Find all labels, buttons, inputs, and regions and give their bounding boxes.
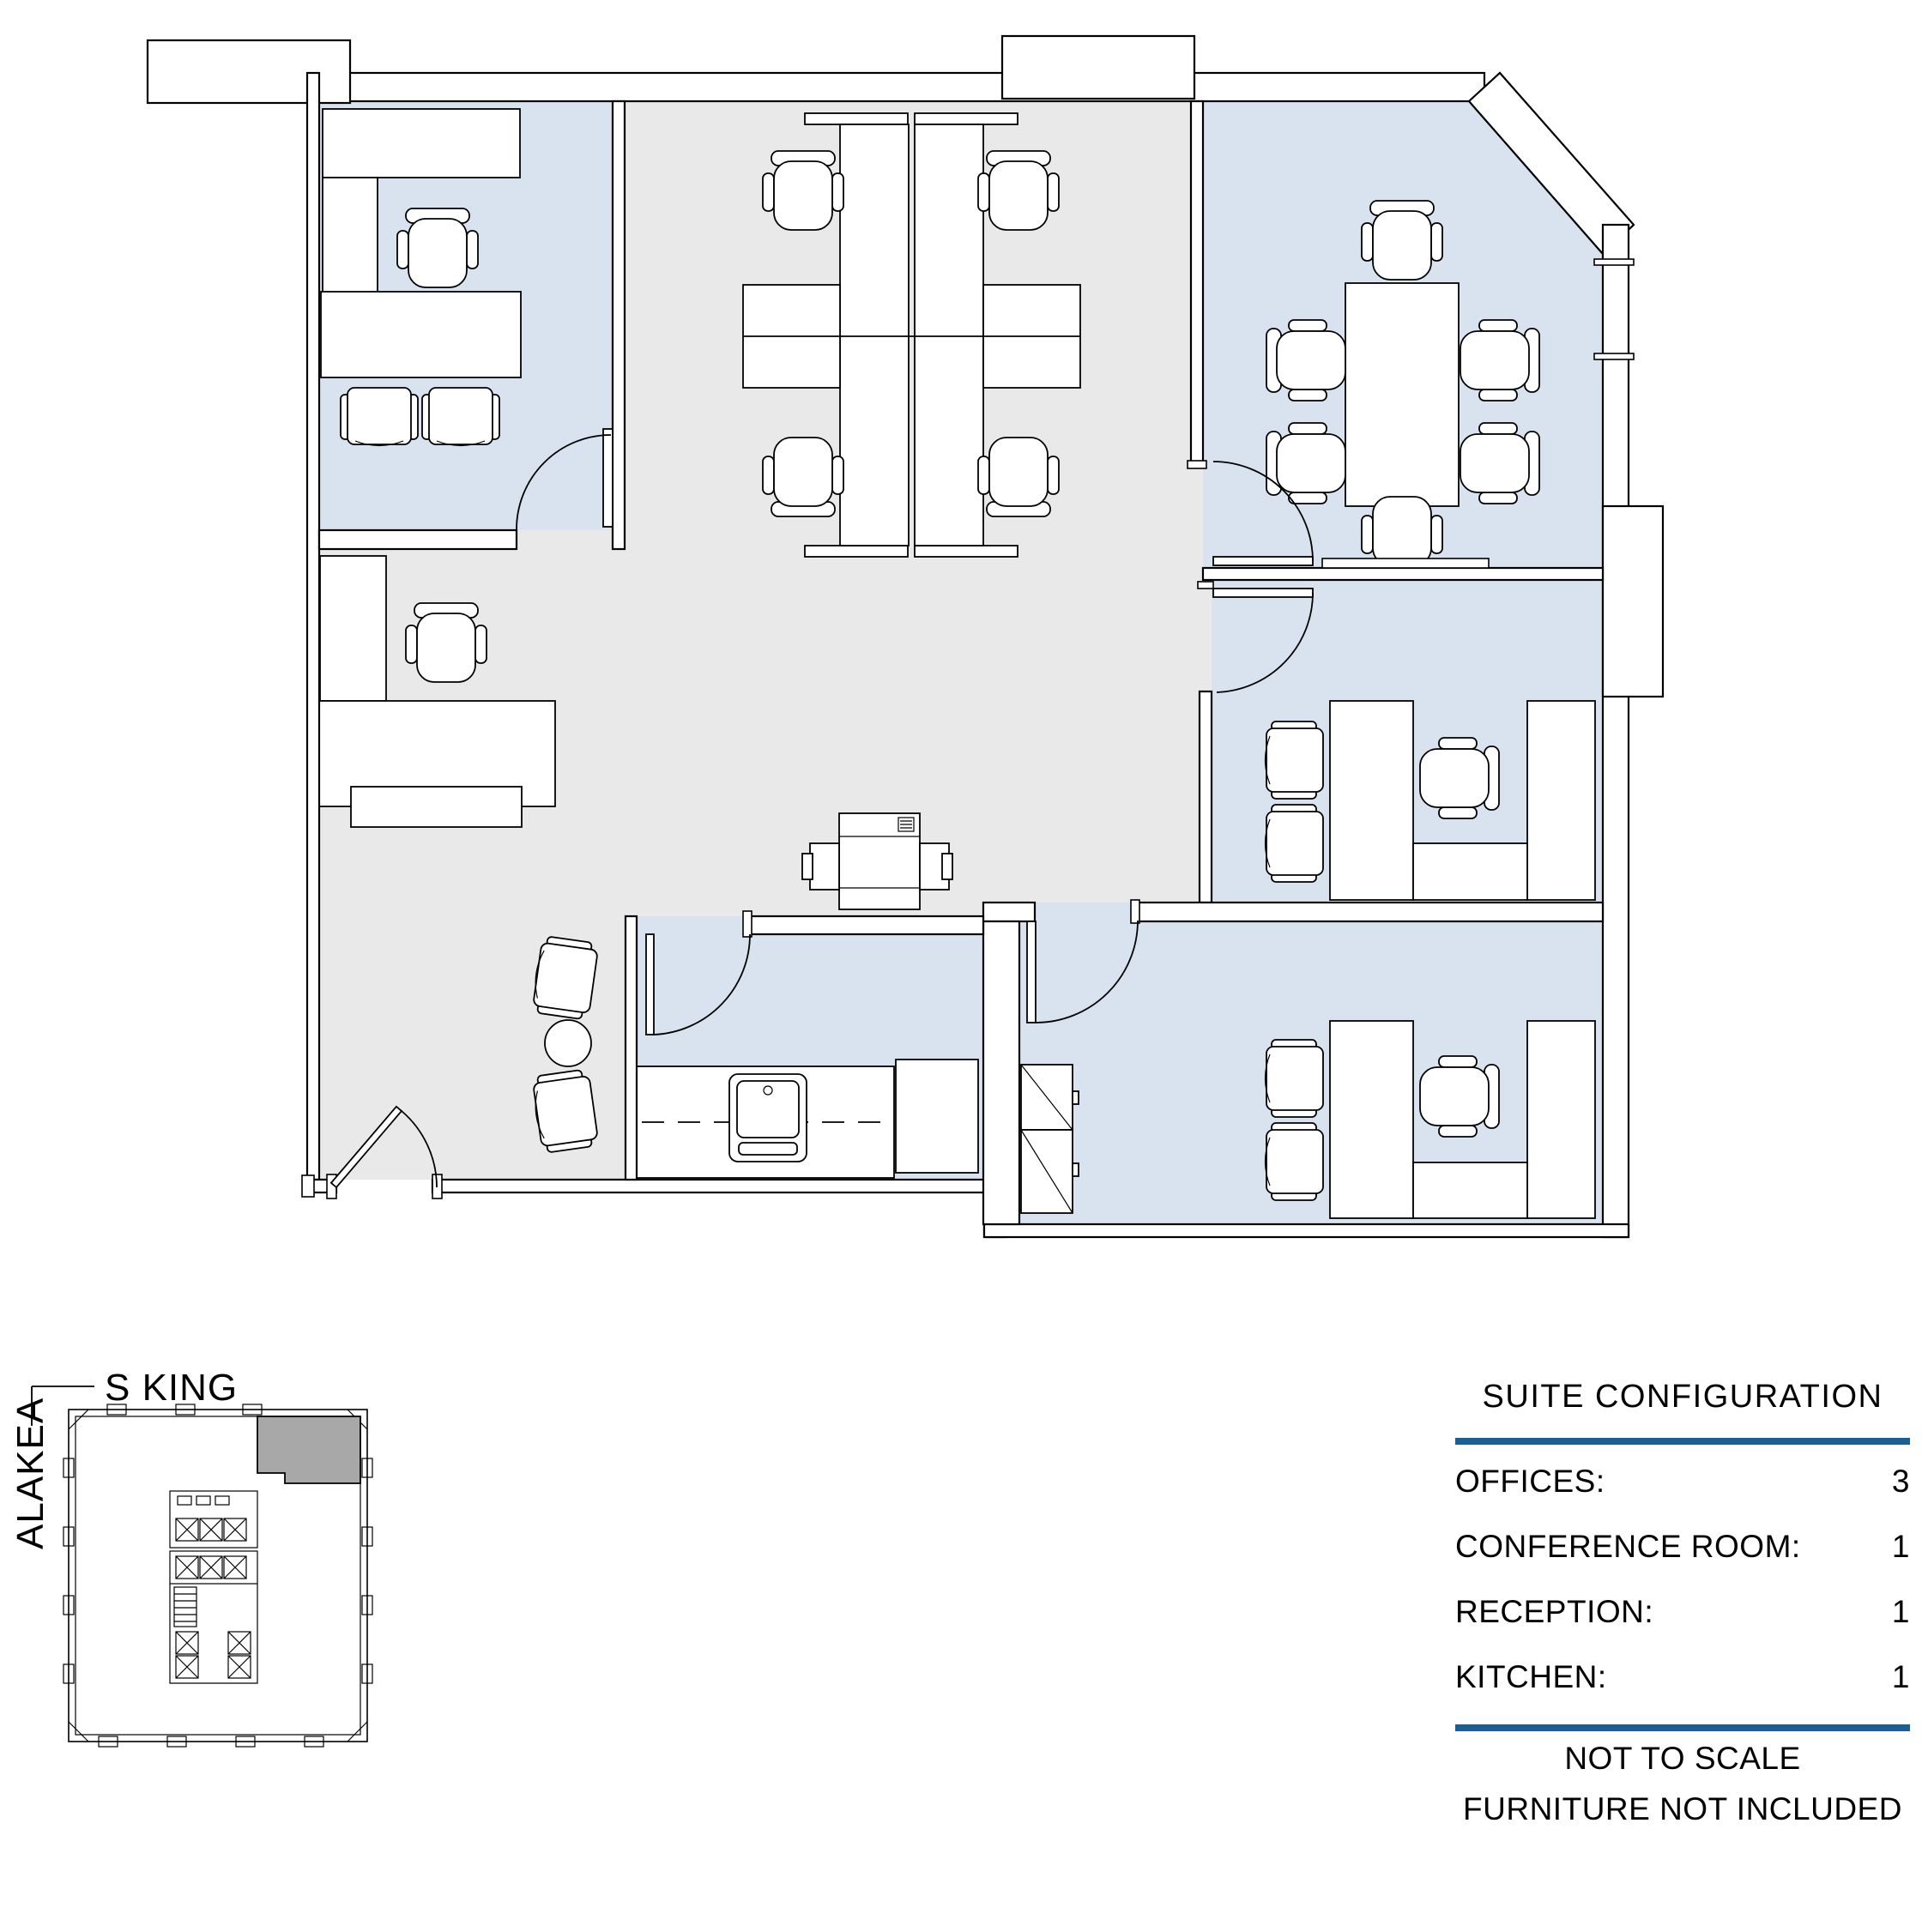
street-label-top: S KING — [105, 1367, 238, 1409]
key-plan: S KING ALAKEA — [9, 1367, 372, 1747]
door-jamb — [1131, 900, 1139, 923]
sidelight-glass — [1322, 558, 1489, 568]
door-jamb — [743, 911, 752, 937]
suite-configuration-panel: SUITE CONFIGURATION OFFICES: 3 CONFERENC… — [1455, 1379, 1910, 1826]
conference-chair-icon — [1460, 320, 1539, 401]
lounge-chair-icon — [531, 935, 599, 1020]
corner-cap — [302, 1175, 314, 1197]
floor-plan-svg: S KING ALAKEA SUITE CONFIGURATION OFFICE… — [0, 0, 1922, 1932]
top-center-column — [1002, 36, 1194, 99]
street-label-left: ALAKEA — [9, 1398, 51, 1549]
kitchen-top-wall — [750, 916, 983, 934]
window-mullion — [1594, 353, 1634, 359]
desk — [1330, 701, 1413, 900]
row-value: 3 — [1892, 1464, 1910, 1499]
office-3-top-wall — [983, 903, 1035, 921]
divider-rule-bottom — [1455, 1724, 1910, 1731]
row-value: 1 — [1892, 1594, 1910, 1629]
office-1-right-wall — [613, 101, 625, 549]
panel-cap — [915, 546, 1018, 557]
divider-rule-top — [1455, 1438, 1910, 1445]
conference-left-wall — [1191, 101, 1203, 468]
guest-chair-icon — [1266, 721, 1324, 799]
bottom-wall — [432, 1180, 984, 1192]
storage-cabinet — [1021, 1065, 1079, 1213]
desk-chair-icon — [763, 438, 843, 516]
right-column — [1603, 506, 1663, 697]
desk-chair-icon — [1420, 1056, 1499, 1137]
row-label: RECEPTION: — [1455, 1594, 1653, 1629]
note-not-to-scale: NOT TO SCALE — [1564, 1741, 1800, 1776]
conference-chair-icon — [1460, 423, 1539, 504]
desk — [1527, 701, 1595, 900]
floor-plan-sheet: S KING ALAKEA SUITE CONFIGURATION OFFICE… — [0, 0, 1922, 1932]
reception-cabinet — [320, 556, 386, 701]
bottom-wall-right — [984, 1224, 1629, 1237]
left-wall — [307, 73, 319, 1180]
desk — [1527, 1021, 1595, 1218]
credenza — [323, 109, 520, 178]
office-1-bottom-wall — [319, 530, 517, 549]
right-wall — [1603, 225, 1629, 1237]
guest-chair-icon — [341, 388, 418, 446]
sink-icon — [729, 1074, 807, 1162]
desk-chair-icon — [397, 208, 478, 287]
round-table — [545, 1020, 591, 1066]
cabinet — [323, 178, 378, 293]
panel-cap — [805, 113, 908, 124]
guest-chair-icon — [422, 388, 499, 446]
conference-chair-icon — [1266, 423, 1345, 504]
transaction-counter — [351, 787, 522, 827]
row-label: CONFERENCE ROOM: — [1455, 1529, 1801, 1564]
refrigerator — [896, 1060, 978, 1173]
workstation-desk — [915, 124, 983, 546]
conference-table — [1345, 283, 1459, 506]
office-2-left-wall — [1200, 691, 1212, 903]
desk-chair-icon — [763, 151, 843, 230]
config-row: OFFICES: 3 — [1455, 1464, 1910, 1499]
row-label: OFFICES: — [1455, 1464, 1605, 1499]
guest-chair-icon — [1266, 805, 1324, 882]
desk — [321, 292, 521, 377]
top-wall — [227, 73, 1484, 101]
config-row: RECEPTION: 1 — [1455, 1594, 1910, 1629]
desk-chair-icon — [406, 603, 487, 682]
kitchen-door-floor — [637, 916, 750, 934]
suite-location-highlight — [257, 1416, 360, 1483]
wall-end-cap — [1188, 461, 1206, 468]
panel-title: SUITE CONFIGURATION — [1483, 1379, 1883, 1415]
desk-return — [1413, 1162, 1527, 1218]
guest-chair-icon — [1266, 1040, 1324, 1117]
guest-chair-icon — [1266, 1123, 1324, 1200]
kitchen-furniture — [637, 1060, 978, 1178]
conference-chair-icon — [1362, 201, 1442, 280]
row-value: 1 — [1892, 1659, 1910, 1694]
workstation-desk — [840, 124, 909, 546]
desk-return — [1413, 843, 1527, 900]
suite-plan — [148, 36, 1663, 1237]
row-value: 1 — [1892, 1529, 1910, 1564]
conference-office2-wall — [1203, 568, 1603, 580]
config-row: CONFERENCE ROOM: 1 — [1455, 1529, 1910, 1564]
config-row: KITCHEN: 1 — [1455, 1659, 1910, 1694]
desk — [1330, 1021, 1413, 1218]
panel-cap — [915, 113, 1018, 124]
office-3-top-wall — [1138, 903, 1603, 921]
desk-chair-icon — [1420, 738, 1499, 818]
panel-cap — [805, 546, 908, 557]
office-3-door-floor — [1035, 903, 1138, 921]
row-label: KITCHEN: — [1455, 1659, 1607, 1694]
conference-chair-icon — [1266, 320, 1345, 401]
lounge-chair-icon — [531, 1069, 599, 1154]
door-jamb — [1198, 582, 1213, 589]
desk-chair-icon — [978, 151, 1059, 230]
window-mullion — [1594, 259, 1634, 265]
desk-chair-icon — [978, 438, 1059, 516]
kitchen-left-wall — [626, 916, 637, 1180]
note-furniture: FURNITURE NOT INCLUDED — [1463, 1791, 1902, 1826]
kitchen-office3-wall — [983, 921, 1019, 1224]
